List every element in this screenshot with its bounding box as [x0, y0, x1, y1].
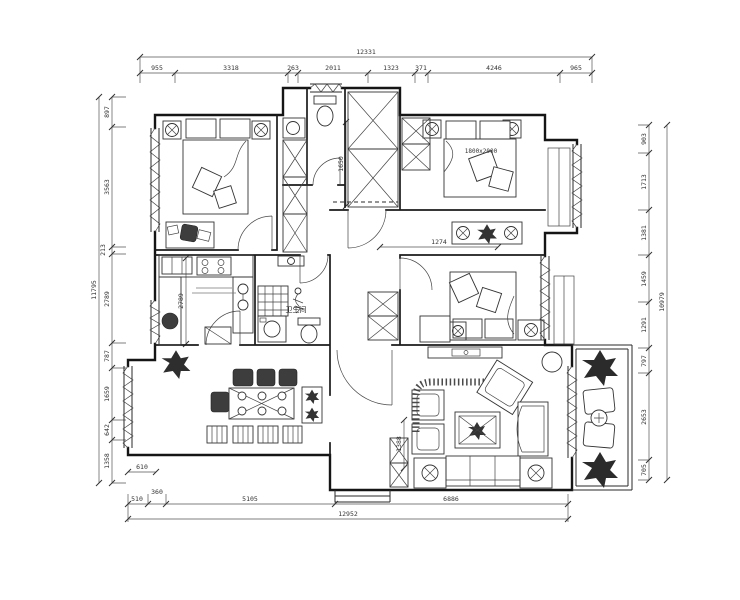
- dining-chair-icon: [279, 369, 297, 386]
- dim-top-seg: 4246: [486, 64, 502, 72]
- dining-chair-icon: [211, 392, 229, 412]
- dim-top-seg: 263: [287, 64, 299, 72]
- room-bedroom2: 1800x2000: [423, 120, 522, 244]
- dim-bottom-seg: 6886: [443, 495, 459, 503]
- dim-right-seg: 1459: [640, 271, 648, 287]
- dim-right-seg: 1713: [640, 174, 648, 190]
- window-bedroom1-left: [150, 128, 160, 232]
- dim-corridor-width: 1274: [431, 238, 447, 246]
- dim-left-seg: 3563: [103, 179, 111, 195]
- window-bedroom2-bay: [548, 144, 582, 228]
- plant-icon: [162, 350, 191, 379]
- desk-chair-icon: [180, 224, 199, 243]
- dining-chair-icon: [233, 426, 253, 443]
- dim-top-seg: 2011: [325, 64, 341, 72]
- plant-icon: [305, 408, 319, 422]
- side-table-lamp-icon: [520, 458, 552, 488]
- door-arc-bedroom1: [238, 216, 272, 250]
- toilet-icon: [298, 318, 320, 343]
- sofa-icon: [446, 456, 520, 486]
- dim-left-total: 11795: [90, 280, 98, 300]
- dimension-chain-right: 10979 903 1713 1381 1459 1291 797 2653 7…: [638, 122, 670, 483]
- sink-icon: [283, 118, 305, 138]
- dim-closet-height: 1650: [337, 156, 345, 172]
- dining-chair-icon: [233, 369, 253, 386]
- kitchen-note-text: [192, 288, 236, 293]
- outer-walls: [128, 88, 577, 490]
- room-balcony: [582, 350, 618, 488]
- dim-right-seg: 1381: [640, 225, 648, 241]
- dim-bottom-seg: 510: [131, 495, 143, 503]
- dim-left-seg: 1659: [103, 386, 111, 402]
- dim-right-seg: 1291: [640, 317, 648, 333]
- dim-left-seg: 787: [103, 350, 111, 362]
- dimension-chain-left: 11795 897 3563 213 2789 787 1659 642 135…: [90, 94, 126, 486]
- dim-left-seg: 213: [99, 244, 107, 256]
- window-living-balcony: [567, 366, 577, 458]
- dim-right-seg: 797: [640, 355, 648, 367]
- sofa-icon: [517, 402, 548, 456]
- wardrobe-icon: [283, 140, 307, 252]
- window-kitchen-left: [150, 300, 160, 344]
- dim-bottom-seg: 360: [151, 488, 163, 496]
- room-bedroom1: [163, 119, 270, 248]
- desk-icon: [420, 316, 450, 342]
- fridge-icon: [162, 257, 192, 274]
- dim-left-seg: 642: [103, 424, 111, 436]
- corner-basin-icon: [162, 313, 178, 329]
- dimension-chain-bottom: 510 360 5105 6886 12952: [125, 488, 571, 522]
- dim-top-seg: 955: [151, 64, 163, 72]
- room-dining: [162, 350, 322, 443]
- dim-bay-width: 610: [136, 463, 148, 471]
- dim-top-seg: 3318: [223, 64, 239, 72]
- plant-icon: [305, 390, 319, 404]
- dim-left-seg: 897: [103, 106, 111, 118]
- console-table-icon: [452, 222, 522, 244]
- stove-icon: [197, 257, 231, 275]
- round-table-icon: [542, 352, 562, 372]
- side-table-lamp-icon: [414, 458, 446, 488]
- dim-bottom-seg: 5105: [242, 495, 258, 503]
- coffee-table-icon: [455, 412, 500, 448]
- room-bathroom: 卫生间: [258, 256, 320, 343]
- bed-icon: 1800x2000: [444, 121, 516, 197]
- bed-icon: [183, 119, 250, 214]
- dim-top-seg: 1323: [383, 64, 399, 72]
- room-kitchen: [159, 255, 253, 345]
- kitchen-sink-icon: [233, 277, 253, 333]
- floor-plan-drawing: 12331 955 3318 263 2011 1323 371 4246 96…: [0, 0, 740, 600]
- window-bedroom3-right: [540, 256, 574, 344]
- dining-chair-icon: [258, 426, 278, 443]
- plant-icon: [477, 224, 497, 244]
- nightstand-lamp-icon: [252, 121, 270, 139]
- room-bedroom3: [420, 272, 544, 342]
- sideboard-icon: [302, 387, 322, 423]
- wardrobe-icon: [348, 92, 398, 207]
- dim-left-seg: 1358: [103, 453, 111, 469]
- dining-table-icon: [229, 388, 294, 419]
- entry-steps: [335, 490, 390, 502]
- nightstand-lamp-icon: [423, 120, 441, 138]
- wardrobe-icon: [402, 118, 430, 170]
- nightstand-lamp-icon: [518, 320, 544, 340]
- armchair-icon: [412, 424, 444, 454]
- floor-plan-page: 12331 955 3318 263 2011 1323 371 4246 96…: [0, 0, 740, 600]
- dining-chair-icon: [257, 369, 275, 386]
- kitchen-counter: [159, 277, 181, 345]
- shower-icon: [258, 286, 288, 316]
- washing-machine-icon: [258, 316, 286, 342]
- dim-right-seg: 2653: [640, 409, 648, 425]
- dim-bottom-total: 12952: [338, 510, 358, 518]
- plant-icon: [582, 452, 618, 488]
- wardrobe-icon: [368, 292, 398, 340]
- dim-right-seg: 903: [640, 133, 648, 145]
- dim-top-seg: 965: [570, 64, 582, 72]
- plant-icon: [582, 350, 618, 386]
- door-arc-bedroom3: [400, 258, 432, 290]
- room-living: [412, 347, 562, 488]
- door-arc-kitchen: [206, 311, 240, 345]
- door-arc-bedroom2: [348, 210, 386, 248]
- toilet-icon: [314, 96, 336, 126]
- room-bathroom-top: [283, 96, 336, 138]
- dim-right-total: 10979: [658, 292, 666, 312]
- desk-icon: [166, 222, 214, 248]
- dimension-chain-top: 12331 955 3318 263 2011 1323 371 4246 96…: [137, 48, 595, 83]
- door-arc-bathroom-top: [313, 158, 340, 185]
- dim-top-seg: 371: [415, 64, 427, 72]
- dim-left-seg: 2789: [103, 291, 111, 307]
- window-bathroom-top: [310, 84, 342, 92]
- wardrobes: [283, 92, 430, 487]
- window-dining-bay: [123, 366, 133, 448]
- base-cabinet-icon: [205, 327, 231, 344]
- dining-chair-icon: [283, 426, 302, 443]
- nightstand-lamp-icon: [163, 121, 181, 139]
- dim-top-total: 12331: [356, 48, 376, 56]
- bathroom-label: 卫生间: [286, 305, 307, 314]
- bed-size-label: 1800x2000: [465, 148, 498, 155]
- dining-chair-icon: [207, 426, 227, 443]
- door-arc-entry: [337, 350, 392, 405]
- tv-cabinet-icon: [428, 347, 502, 358]
- dim-right-seg: 705: [640, 464, 648, 476]
